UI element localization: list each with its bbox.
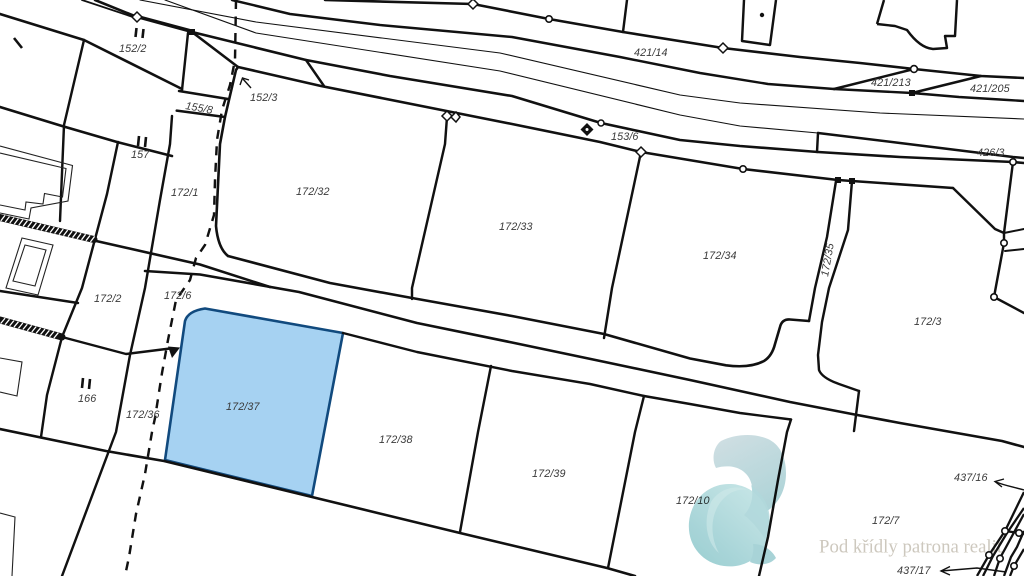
svg-text:172/2: 172/2 [94,293,122,305]
svg-text:172/32: 172/32 [296,186,330,198]
svg-text:172/7: 172/7 [872,515,900,527]
svg-text:426/3: 426/3 [977,147,1005,159]
svg-text:172/37: 172/37 [226,401,261,413]
svg-text:172/3: 172/3 [914,316,942,328]
svg-text:166: 166 [78,393,96,405]
svg-text:Pod křídly patrona realit: Pod křídly patrona realit [819,537,1003,558]
svg-text:153/6: 153/6 [611,131,639,143]
svg-text:172/33: 172/33 [499,221,533,233]
svg-text:421/14: 421/14 [634,47,668,59]
svg-text:152/2: 152/2 [119,43,147,55]
svg-text:421/213: 421/213 [871,77,911,89]
svg-text:437/16: 437/16 [954,472,988,484]
svg-text:172/1: 172/1 [171,187,199,199]
svg-text:172/6: 172/6 [164,290,192,302]
svg-text:152/3: 152/3 [250,92,278,104]
svg-text:421/205: 421/205 [970,83,1011,95]
svg-text:172/39: 172/39 [532,468,566,480]
svg-text:437/17: 437/17 [897,565,932,576]
svg-text:172/38: 172/38 [379,434,413,446]
svg-text:172/36: 172/36 [126,409,160,421]
svg-text:157: 157 [131,149,150,161]
svg-text:172/34: 172/34 [703,250,737,262]
